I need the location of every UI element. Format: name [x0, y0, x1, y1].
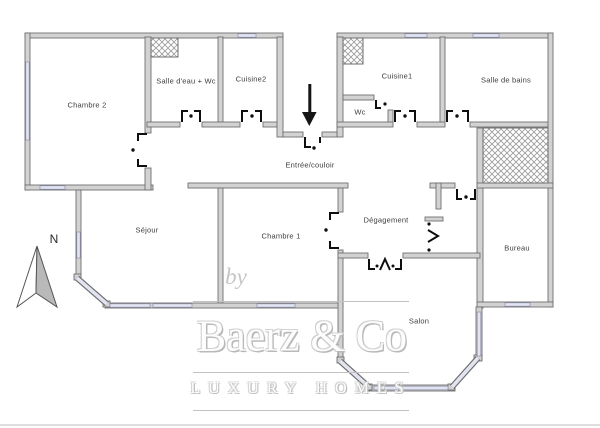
room-label-cuisine1: Cuisine1 — [382, 72, 413, 81]
hatch-area-shaft — [483, 128, 548, 183]
floor-plan-drawing — [0, 0, 600, 428]
room-label-salon: Salon — [409, 317, 429, 326]
salon-door-icon — [369, 259, 401, 270]
room-label-bureau: Bureau — [504, 244, 529, 253]
entrance-arrow-icon — [302, 84, 317, 126]
walls-layer — [25, 33, 553, 391]
room-label-chambre1: Chambre 1 — [262, 232, 301, 241]
watermark-rule-top — [193, 301, 409, 302]
north-compass-icon — [17, 246, 57, 307]
sejour-bay-window — [77, 278, 107, 304]
hatch-area-salle-deau — [151, 38, 178, 57]
entry-door-icon — [305, 137, 320, 150]
chambre2-door-icon — [131, 134, 147, 166]
closet-bifold-door-icon — [427, 222, 438, 251]
cuisine2-door-icon — [242, 111, 261, 122]
room-label-entree-couloir: Entrée/couloir — [285, 161, 334, 170]
cuisine1-door-icon — [395, 111, 415, 122]
salle-deau-door-icon — [182, 111, 200, 122]
salle-de-bains-door-icon — [447, 111, 468, 122]
bureau-door-icon — [457, 189, 475, 199]
watermark-rule-bottom — [193, 410, 409, 411]
room-label-sejour: Séjour — [136, 226, 159, 235]
room-label-chambre2: Chambre 2 — [68, 101, 107, 110]
page-bottom-divider — [0, 424, 600, 426]
hatch-area-cuisine1 — [343, 38, 363, 64]
room-label-cuisine2: Cuisine2 — [236, 75, 267, 84]
room-label-wc: Wc — [354, 108, 365, 117]
room-label-salle-de-bains: Salle de bains — [481, 76, 531, 85]
salon-left-bay-window — [340, 361, 369, 387]
room-label-salle-deau-wc: Salle d'eau + Wc — [156, 77, 215, 86]
watermark-rule-middle — [193, 372, 409, 373]
hatch-areas — [151, 38, 548, 183]
north-letter: N — [50, 232, 59, 246]
chambre1-door-icon — [324, 213, 339, 248]
room-label-degagement: Dégagement — [364, 216, 409, 225]
floor-plan-page: Chambre 2 Salle d'eau + Wc Cuisine2 Cuis… — [0, 0, 600, 428]
salon-right-bay-window — [452, 358, 478, 387]
wc-door-icon — [376, 100, 387, 108]
